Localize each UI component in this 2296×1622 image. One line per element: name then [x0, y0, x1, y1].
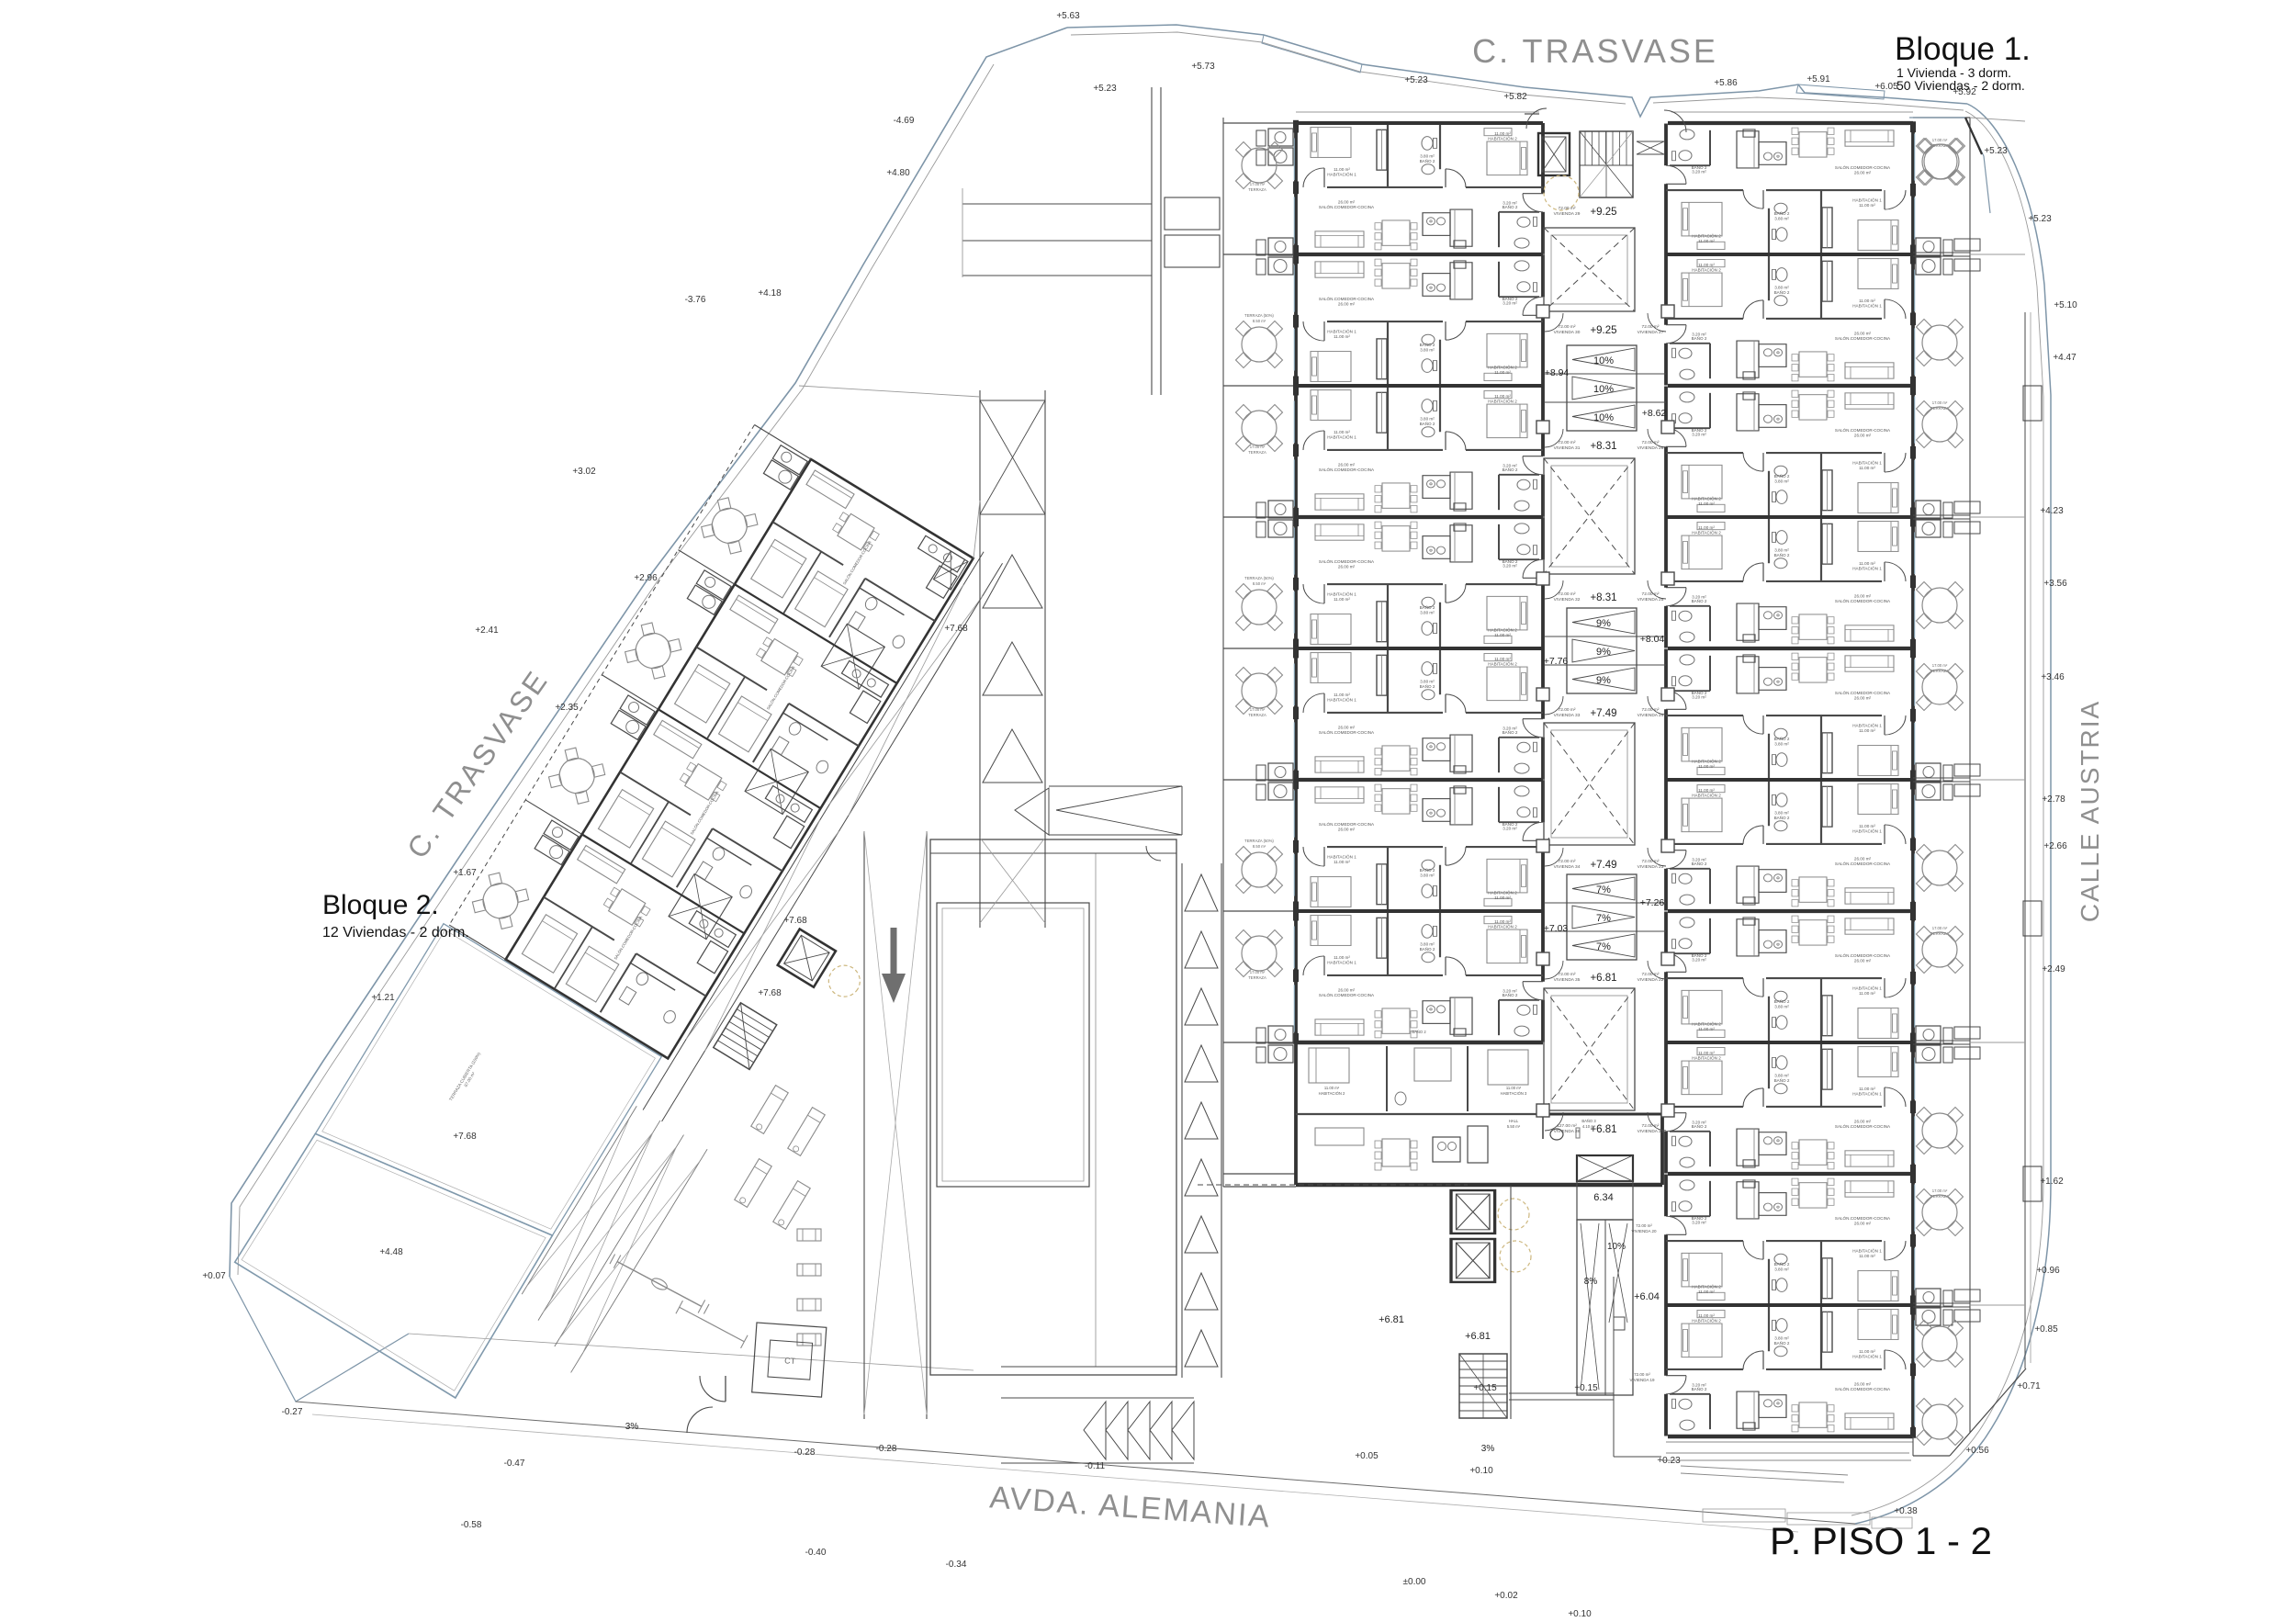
svg-text:SALÓN.COMEDOR-COCINA: SALÓN.COMEDOR-COCINA: [1319, 729, 1375, 735]
svg-text:9%: 9%: [1596, 675, 1611, 686]
svg-text:+8.31: +8.31: [1590, 441, 1616, 452]
svg-text:-0.34: -0.34: [946, 1560, 967, 1570]
svg-text:6.34: 6.34: [1593, 1192, 1613, 1203]
svg-text:3.80 m²: 3.80 m²: [1774, 1335, 1789, 1340]
svg-text:+5.23: +5.23: [2028, 214, 2052, 224]
svg-text:11.00 m²: 11.00 m²: [1334, 167, 1350, 172]
svg-text:72.00 m²: 72.00 m²: [1559, 206, 1576, 211]
svg-text:HABITACIÓN 1: HABITACIÓN 1: [1327, 434, 1356, 440]
svg-text:26.00 m²: 26.00 m²: [1854, 1120, 1872, 1124]
svg-text:+6.04: +6.04: [1634, 1291, 1660, 1302]
svg-text:8%: 8%: [1584, 1277, 1598, 1287]
svg-text:11.00 m²: 11.00 m²: [1494, 370, 1511, 375]
svg-text:5.50 m²: 5.50 m²: [1507, 1124, 1521, 1129]
svg-text:HABITACIÓN 1: HABITACIÓN 1: [1852, 723, 1882, 728]
svg-text:SALÓN.COMEDOR-COCINA: SALÓN.COMEDOR-COCINA: [1319, 467, 1375, 472]
svg-text:3.80 m²: 3.80 m²: [1774, 1005, 1789, 1009]
svg-text:72.00 m²: 72.00 m²: [1559, 972, 1576, 977]
svg-text:BAÑO 3: BAÑO 3: [1581, 1119, 1596, 1123]
svg-text:+4.47: +4.47: [2053, 353, 2077, 363]
svg-text:26.00 m²: 26.00 m²: [1338, 827, 1356, 831]
svg-text:+4.23: +4.23: [2040, 506, 2064, 516]
svg-text:VIVIENDA 35: VIVIENDA 35: [1554, 977, 1581, 983]
svg-text:3%: 3%: [1481, 1444, 1495, 1454]
svg-text:BAÑO 2: BAÑO 2: [1774, 1340, 1790, 1346]
svg-text:11.00 m²: 11.00 m²: [1698, 1051, 1715, 1055]
svg-text:BAÑO 2: BAÑO 2: [1692, 164, 1707, 170]
svg-text:BAÑO 2: BAÑO 2: [1420, 604, 1435, 610]
svg-text:HABITACIÓN 1: HABITACIÓN 1: [1327, 172, 1356, 177]
svg-text:BAÑO 2: BAÑO 2: [1503, 729, 1518, 735]
svg-text:11.00 m²: 11.00 m²: [1334, 334, 1350, 339]
svg-text:HABITACIÓN 1: HABITACIÓN 1: [1852, 1354, 1882, 1359]
svg-text:BAÑO 2: BAÑO 2: [1412, 1030, 1426, 1034]
svg-text:3.80 m²: 3.80 m²: [1774, 742, 1789, 747]
svg-text:26.00 m²: 26.00 m²: [1854, 170, 1872, 175]
svg-text:HABITACIÓN 1: HABITACIÓN 1: [1852, 566, 1882, 571]
svg-text:+5.91: +5.91: [1806, 74, 1830, 84]
svg-text:HABITACIÓN 2: HABITACIÓN 2: [1692, 233, 1721, 239]
svg-text:TERRAZA (50%): TERRAZA (50%): [1244, 313, 1274, 318]
svg-text:-0.11: -0.11: [1085, 1461, 1105, 1471]
svg-text:11.00 m²: 11.00 m²: [1859, 203, 1875, 208]
svg-text:+6.81: +6.81: [1379, 1314, 1404, 1325]
svg-text:+9.25: +9.25: [1590, 207, 1616, 218]
svg-text:+4.80: +4.80: [886, 168, 910, 178]
svg-text:HABITACIÓN 2: HABITACIÓN 2: [1488, 398, 1517, 403]
svg-text:+8.62: +8.62: [1642, 408, 1667, 419]
svg-text:+2.78: +2.78: [2042, 794, 2065, 805]
svg-text:HABITACIÓN 1: HABITACIÓN 1: [1327, 329, 1356, 334]
svg-text:+0.07: +0.07: [202, 1271, 226, 1281]
svg-text:26.00 m²: 26.00 m²: [1338, 301, 1356, 306]
svg-text:VIVIENDA 32: VIVIENDA 32: [1554, 597, 1581, 603]
svg-text:HABITACIÓN 2: HABITACIÓN 2: [1488, 627, 1517, 633]
svg-text:BAÑO 2: BAÑO 2: [1692, 1215, 1707, 1221]
svg-text:12 Viviendas - 2 dorm.: 12 Viviendas - 2 dorm.: [322, 925, 469, 941]
svg-text:11.00 m²: 11.00 m²: [1698, 239, 1715, 243]
svg-text:+5.23: +5.23: [1404, 75, 1428, 85]
svg-text:SALÓN.COMEDOR-COCINA: SALÓN.COMEDOR-COCINA: [1319, 204, 1375, 209]
svg-text:SALÓN.COMEDOR-COCINA: SALÓN.COMEDOR-COCINA: [1835, 335, 1891, 341]
svg-text:8.50 m²: 8.50 m²: [1253, 581, 1266, 586]
svg-text:VIVIENDA 30: VIVIENDA 30: [1554, 330, 1581, 335]
svg-text:HABITACIÓN 2: HABITACIÓN 2: [1488, 365, 1517, 370]
svg-text:11.00 m²: 11.00 m²: [1859, 561, 1875, 566]
svg-text:+1.67: +1.67: [453, 868, 477, 878]
svg-text:11.00 m²: 11.00 m²: [1698, 764, 1715, 769]
svg-text:3.20 m²: 3.20 m²: [1503, 826, 1517, 830]
svg-text:+0.10: +0.10: [1469, 1466, 1493, 1476]
svg-text:11.00 m²: 11.00 m²: [1859, 824, 1875, 828]
svg-text:-3.76: -3.76: [685, 295, 706, 305]
svg-text:11.00 m²: 11.00 m²: [1334, 860, 1350, 864]
svg-text:26.00 m²: 26.00 m²: [1338, 988, 1356, 993]
svg-text:26.00 m²: 26.00 m²: [1854, 433, 1872, 437]
svg-text:BAÑO 2: BAÑO 2: [1692, 861, 1707, 866]
svg-text:HABITACIÓN 3: HABITACIÓN 3: [1501, 1091, 1527, 1096]
svg-text:+5.10: +5.10: [2054, 300, 2077, 310]
svg-text:11.00 m²: 11.00 m²: [1494, 919, 1511, 924]
svg-text:+7.68: +7.68: [758, 988, 782, 998]
svg-text:HABITACIÓN 1: HABITACIÓN 1: [1852, 460, 1882, 466]
svg-text:BAÑO 2: BAÑO 2: [1774, 289, 1790, 295]
svg-text:+0.85: +0.85: [2034, 1324, 2058, 1335]
svg-text:C. TRASVASE: C. TRASVASE: [1472, 32, 1718, 70]
svg-text:11.00 m²: 11.00 m²: [1494, 131, 1511, 136]
svg-text:HABITACIÓN 2: HABITACIÓN 2: [1692, 792, 1721, 797]
svg-text:HABITACIÓN 1: HABITACIÓN 1: [1852, 828, 1882, 834]
svg-text:17.00 m²: 17.00 m²: [1932, 138, 1948, 142]
svg-text:11.00 m²: 11.00 m²: [1859, 1087, 1875, 1091]
svg-text:+0.23: +0.23: [1657, 1456, 1681, 1466]
svg-text:+7.68: +7.68: [783, 916, 807, 926]
svg-text:+0.56: +0.56: [1965, 1446, 1989, 1456]
svg-text:9%: 9%: [1596, 647, 1611, 658]
svg-text:BAÑO 2: BAÑO 2: [1692, 427, 1707, 433]
svg-text:BAÑO 2: BAÑO 2: [1692, 335, 1707, 341]
svg-text:Bloque 1.: Bloque 1.: [1895, 31, 2031, 67]
svg-text:TERRAZA (50%): TERRAZA (50%): [1244, 576, 1274, 580]
svg-text:HABITACIÓN 2: HABITACIÓN 2: [1692, 266, 1721, 272]
svg-text:26.00 m²: 26.00 m²: [1854, 958, 1872, 963]
svg-text:HABITACIÓN 2: HABITACIÓN 2: [1692, 496, 1721, 501]
svg-text:SALÓN.COMEDOR-COCINA: SALÓN.COMEDOR-COCINA: [1835, 164, 1891, 170]
svg-text:3.20 m²: 3.20 m²: [1692, 432, 1706, 436]
svg-text:+1.21: +1.21: [371, 993, 395, 1003]
svg-text:+6.81: +6.81: [1465, 1331, 1491, 1342]
svg-text:26.00 m²: 26.00 m²: [1854, 1221, 1872, 1225]
svg-text:3.20 m²: 3.20 m²: [1692, 169, 1706, 174]
svg-text:SALÓN.COMEDOR-COCINA: SALÓN.COMEDOR-COCINA: [1835, 598, 1891, 603]
svg-text:+0.05: +0.05: [1355, 1451, 1379, 1461]
svg-text:SALÓN.COMEDOR-COCINA: SALÓN.COMEDOR-COCINA: [1835, 861, 1891, 866]
svg-text:BAÑO 2: BAÑO 2: [1503, 204, 1518, 209]
svg-text:HABITACIÓN 2: HABITACIÓN 2: [1692, 1284, 1721, 1290]
svg-text:11.00 m²: 11.00 m²: [1324, 1086, 1340, 1090]
svg-text:3.20 m²: 3.20 m²: [1692, 1220, 1706, 1224]
svg-text:SALÓN.COMEDOR-COCINA: SALÓN.COMEDOR-COCINA: [1835, 427, 1891, 433]
svg-text:SALÓN.COMEDOR-COCINA: SALÓN.COMEDOR-COCINA: [1835, 1215, 1891, 1221]
svg-text:BAÑO 2: BAÑO 2: [1692, 690, 1707, 695]
svg-text:11.00 m²: 11.00 m²: [1859, 1254, 1875, 1258]
svg-text:17.00 m²: 17.00 m²: [1932, 400, 1948, 405]
svg-text:HABITACIÓN 1: HABITACIÓN 1: [1327, 697, 1356, 703]
svg-text:3.80 m²: 3.80 m²: [1774, 810, 1789, 815]
svg-text:+8.94: +8.94: [1545, 367, 1570, 378]
svg-text:-0.58: -0.58: [461, 1520, 482, 1530]
svg-text:9%: 9%: [1596, 618, 1611, 629]
svg-text:11.00 m²: 11.00 m²: [1494, 633, 1511, 637]
svg-text:11.00 m²: 11.00 m²: [1859, 991, 1875, 996]
svg-text:BAÑO 2: BAÑO 2: [1692, 598, 1707, 603]
svg-text:BAÑO 2: BAÑO 2: [1774, 1261, 1790, 1267]
svg-text:HABITACIÓN 2: HABITACIÓN 2: [1692, 529, 1721, 535]
svg-text:10%: 10%: [1593, 355, 1614, 366]
svg-text:7%: 7%: [1596, 884, 1611, 895]
svg-text:BAÑO 2: BAÑO 2: [1420, 946, 1435, 952]
svg-text:+7.49: +7.49: [1590, 860, 1616, 871]
svg-text:26.00 m²: 26.00 m²: [1854, 857, 1872, 862]
svg-text:26.00 m²: 26.00 m²: [1854, 594, 1872, 599]
svg-text:+4.48: +4.48: [379, 1247, 403, 1257]
svg-text:CALLE AUSTRIA: CALLE AUSTRIA: [2076, 700, 2104, 922]
svg-text:-0.47: -0.47: [504, 1459, 525, 1469]
svg-text:BAÑO 2: BAÑO 2: [1420, 421, 1435, 426]
svg-text:HABITACIÓN 1: HABITACIÓN 1: [1852, 986, 1882, 991]
svg-text:8.50 m²: 8.50 m²: [1253, 319, 1266, 323]
svg-text:+7.76: +7.76: [1544, 656, 1569, 667]
svg-text:BAÑO 2: BAÑO 2: [1774, 1077, 1790, 1083]
svg-text:+3.56: +3.56: [2043, 579, 2067, 589]
svg-text:11.00 m²: 11.00 m²: [1506, 1086, 1522, 1090]
svg-text:BAÑO 2: BAÑO 2: [1420, 342, 1435, 347]
svg-text:HABITACIÓN 1: HABITACIÓN 1: [1852, 303, 1882, 309]
svg-text:11.00 m²: 11.00 m²: [1494, 895, 1511, 900]
svg-text:BAÑO 2: BAÑO 2: [1774, 473, 1790, 479]
svg-text:SALÓN.COMEDOR-COCINA: SALÓN.COMEDOR-COCINA: [1319, 821, 1375, 827]
svg-text:+0.96: +0.96: [2036, 1266, 2060, 1276]
svg-text:72.00 m²: 72.00 m²: [1559, 859, 1576, 864]
svg-text:+3.02: +3.02: [572, 467, 596, 477]
svg-text:3%: 3%: [625, 1422, 639, 1432]
svg-text:11.00 m²: 11.00 m²: [1698, 1290, 1715, 1294]
svg-text:+3.46: +3.46: [2041, 672, 2065, 682]
svg-text:BAÑO 2: BAÑO 2: [1774, 736, 1790, 741]
svg-text:+0.10: +0.10: [1568, 1609, 1592, 1619]
svg-text:72.00 m²: 72.00 m²: [1559, 324, 1576, 330]
svg-text:HABITACIÓN 2: HABITACIÓN 2: [1488, 923, 1517, 929]
svg-text:+2.66: +2.66: [2043, 841, 2067, 851]
svg-text:HABITACIÓN 2: HABITACIÓN 2: [1319, 1091, 1345, 1096]
svg-text:+1.62: +1.62: [2040, 1177, 2064, 1187]
svg-text:+0.71: +0.71: [2017, 1381, 2041, 1391]
svg-text:3.80 m²: 3.80 m²: [1420, 611, 1435, 615]
svg-text:BAÑO 2: BAÑO 2: [1503, 821, 1518, 827]
svg-text:BAÑO 2: BAÑO 2: [1420, 158, 1435, 163]
svg-text:-4.69: -4.69: [894, 116, 915, 126]
svg-text:HABITACIÓN 1: HABITACIÓN 1: [1852, 1091, 1882, 1097]
svg-text:+0.15: +0.15: [1574, 1383, 1598, 1393]
svg-text:3.80 m²: 3.80 m²: [1774, 479, 1789, 484]
svg-text:BAÑO 2: BAÑO 2: [1503, 296, 1518, 301]
svg-text:VIVIENDA 33: VIVIENDA 33: [1554, 713, 1581, 718]
svg-text:3.80 m²: 3.80 m²: [1420, 153, 1435, 158]
svg-text:BAÑO 2: BAÑO 2: [1503, 558, 1518, 564]
svg-text:+0.38: +0.38: [1894, 1506, 1918, 1516]
svg-text:3.80 m²: 3.80 m²: [1420, 941, 1435, 946]
svg-text:HABITACIÓN 2: HABITACIÓN 2: [1692, 1054, 1721, 1060]
svg-text:BAÑO 2: BAÑO 2: [1774, 552, 1790, 558]
svg-text:10%: 10%: [1593, 412, 1614, 423]
svg-text:BAÑO 2: BAÑO 2: [1692, 1386, 1707, 1391]
svg-text:26.00 m²: 26.00 m²: [1338, 463, 1356, 467]
svg-text:3.80 m²: 3.80 m²: [1420, 679, 1435, 683]
svg-text:3.20 m²: 3.20 m²: [1692, 694, 1706, 699]
svg-text:BAÑO 2: BAÑO 2: [1774, 998, 1790, 1004]
svg-text:26.00 m²: 26.00 m²: [1338, 726, 1356, 730]
svg-text:SALÓN.COMEDOR-COCINA: SALÓN.COMEDOR-COCINA: [1835, 690, 1891, 695]
svg-text:72.00 m²: 72.00 m²: [1559, 707, 1576, 713]
svg-text:CT: CT: [784, 1356, 796, 1366]
svg-text:+5.63: +5.63: [1056, 11, 1080, 21]
svg-text:11.00 m²: 11.00 m²: [1494, 394, 1511, 399]
svg-text:+7.03: +7.03: [1544, 923, 1569, 934]
svg-text:TERRAZA (50%): TERRAZA (50%): [1244, 839, 1274, 843]
svg-text:11.00 m²: 11.00 m²: [1859, 1349, 1875, 1354]
svg-text:+7.68: +7.68: [453, 1132, 477, 1142]
svg-text:BAÑO 2: BAÑO 2: [1503, 992, 1518, 997]
svg-text:-0.27: -0.27: [282, 1407, 303, 1417]
svg-text:Bloque 2.: Bloque 2.: [322, 890, 439, 920]
svg-text:11.00 m²: 11.00 m²: [1698, 525, 1715, 530]
svg-text:SALÓN.COMEDOR-COCINA: SALÓN.COMEDOR-COCINA: [1319, 558, 1375, 564]
svg-text:11.00 m²: 11.00 m²: [1334, 955, 1350, 960]
svg-text:8.50 m²: 8.50 m²: [1253, 844, 1266, 849]
svg-text:+5.73: +5.73: [1191, 62, 1215, 72]
svg-text:SALÓN.COMEDOR-COCINA: SALÓN.COMEDOR-COCINA: [1319, 296, 1375, 301]
svg-text:11.00 m²: 11.00 m²: [1859, 728, 1875, 733]
svg-text:11.00 m²: 11.00 m²: [1698, 501, 1715, 506]
svg-text:7%: 7%: [1596, 941, 1611, 952]
svg-text:VIVIENDA 29: VIVIENDA 29: [1554, 211, 1581, 217]
svg-text:10%: 10%: [1593, 384, 1614, 395]
svg-text:+5.86: +5.86: [1714, 78, 1738, 88]
svg-text:+6.81: +6.81: [1590, 1124, 1616, 1135]
svg-text:HALL: HALL: [1509, 1119, 1519, 1123]
svg-text:17.00 m²: 17.00 m²: [1932, 926, 1948, 930]
svg-text:26.00 m²: 26.00 m²: [1854, 695, 1872, 700]
svg-text:3.20 m²: 3.20 m²: [1503, 563, 1517, 568]
svg-text:BAÑO 2: BAÑO 2: [1774, 815, 1790, 820]
svg-text:11.00 m²: 11.00 m²: [1698, 1313, 1715, 1318]
svg-text:+0.02: +0.02: [1494, 1591, 1518, 1601]
svg-text:17.00 m²: 17.00 m²: [1932, 1188, 1948, 1193]
svg-text:3.80 m²: 3.80 m²: [1774, 1073, 1789, 1077]
svg-text:26.00 m²: 26.00 m²: [1854, 332, 1872, 336]
svg-text:+6.05: +6.05: [1874, 82, 1898, 92]
svg-text:TERRAZA: TERRAZA: [1248, 713, 1266, 717]
svg-text:11.00 m²: 11.00 m²: [1859, 298, 1875, 303]
svg-text:HABITACIÓN 1: HABITACIÓN 1: [1327, 591, 1356, 597]
svg-text:11.00 m²: 11.00 m²: [1698, 263, 1715, 267]
svg-text:11.00 m²: 11.00 m²: [1334, 597, 1350, 602]
svg-text:HABITACIÓN 2: HABITACIÓN 2: [1692, 759, 1721, 764]
svg-text:+7.26: +7.26: [1640, 897, 1665, 908]
svg-text:10%: 10%: [1607, 1242, 1626, 1252]
svg-text:BAÑO 2: BAÑO 2: [1692, 1123, 1707, 1129]
svg-text:BAÑO 2: BAÑO 2: [1420, 683, 1435, 689]
svg-text:+4.18: +4.18: [758, 288, 782, 298]
svg-text:+0.15: +0.15: [1473, 1383, 1497, 1393]
svg-text:11.00 m²: 11.00 m²: [1334, 430, 1350, 434]
svg-text:±0.00: ±0.00: [1403, 1577, 1426, 1587]
svg-text:3.80 m²: 3.80 m²: [1774, 217, 1789, 221]
svg-text:72.00 m²: 72.00 m²: [1559, 591, 1576, 597]
svg-text:3.80 m²: 3.80 m²: [1420, 873, 1435, 878]
svg-text:BAÑO 2: BAÑO 2: [1503, 467, 1518, 472]
svg-text:+5.82: +5.82: [1503, 92, 1527, 102]
svg-text:SALÓN.COMEDOR-COCINA: SALÓN.COMEDOR-COCINA: [1319, 992, 1375, 997]
svg-text:11.00 m²: 11.00 m²: [1698, 1027, 1715, 1031]
svg-text:HABITACIÓN 2: HABITACIÓN 2: [1692, 1021, 1721, 1027]
svg-text:VIVIENDA 34: VIVIENDA 34: [1554, 864, 1581, 870]
svg-text:HABITACIÓN 1: HABITACIÓN 1: [1327, 960, 1356, 965]
svg-text:+7.68: +7.68: [944, 624, 968, 634]
svg-text:+8.31: +8.31: [1590, 592, 1616, 603]
svg-text:+2.35: +2.35: [555, 703, 579, 713]
svg-text:26.00 m²: 26.00 m²: [1854, 1382, 1872, 1387]
svg-text:11.00 m²: 11.00 m²: [1859, 466, 1875, 470]
svg-text:17.00 m²: 17.00 m²: [1932, 663, 1948, 668]
svg-text:+6.81: +6.81: [1590, 973, 1616, 984]
svg-text:+5.23: +5.23: [1984, 146, 2008, 156]
svg-text:3.80 m²: 3.80 m²: [1774, 1267, 1789, 1272]
svg-text:+8.04: +8.04: [1640, 634, 1665, 645]
svg-text:7%: 7%: [1596, 913, 1611, 924]
svg-text:72.00 m²: 72.00 m²: [1636, 1223, 1652, 1228]
svg-text:TERRAZA: TERRAZA: [1248, 187, 1266, 192]
svg-text:72.00 m²: 72.00 m²: [1634, 1372, 1650, 1377]
svg-text:HABITACIÓN 2: HABITACIÓN 2: [1488, 890, 1517, 895]
svg-text:3.20 m²: 3.20 m²: [1692, 957, 1706, 962]
svg-text:26.00 m²: 26.00 m²: [1338, 564, 1356, 569]
svg-text:+2.49: +2.49: [2042, 964, 2065, 974]
svg-text:11.00 m²: 11.00 m²: [1334, 693, 1350, 697]
svg-text:HABITACIÓN 1: HABITACIÓN 1: [1852, 1248, 1882, 1254]
svg-text:SALÓN.COMEDOR-COCINA: SALÓN.COMEDOR-COCINA: [1835, 952, 1891, 958]
svg-text:BAÑO 2: BAÑO 2: [1774, 210, 1790, 216]
svg-text:HABITACIÓN 2: HABITACIÓN 2: [1488, 135, 1517, 141]
svg-text:-0.28: -0.28: [876, 1444, 897, 1454]
svg-text:HABITACIÓN 1: HABITACIÓN 1: [1327, 854, 1356, 860]
svg-text:26.00 m²: 26.00 m²: [1338, 200, 1356, 205]
svg-text:HABITACIÓN 2: HABITACIÓN 2: [1692, 1317, 1721, 1323]
svg-text:VIVIENDA 20: VIVIENDA 20: [1631, 1229, 1657, 1233]
svg-text:3.80 m²: 3.80 m²: [1420, 348, 1435, 353]
svg-text:3.80 m²: 3.80 m²: [1774, 285, 1789, 289]
svg-text:3.80 m²: 3.80 m²: [1774, 547, 1789, 552]
svg-text:VIVIENDA 36: VIVIENDA 36: [1554, 1129, 1581, 1134]
svg-text:SALÓN.COMEDOR-COCINA: SALÓN.COMEDOR-COCINA: [1835, 1123, 1891, 1129]
svg-text:BAÑO 2: BAÑO 2: [1692, 952, 1707, 958]
svg-text:3.80 m²: 3.80 m²: [1420, 416, 1435, 421]
svg-text:P. PISO 1 - 2: P. PISO 1 - 2: [1770, 1519, 1992, 1562]
svg-text:BAÑO 2: BAÑO 2: [1420, 867, 1435, 873]
svg-text:TERRAZA: TERRAZA: [1248, 450, 1266, 455]
svg-text:HABITACIÓN 2: HABITACIÓN 2: [1488, 660, 1517, 666]
svg-text:+9.25: +9.25: [1590, 325, 1616, 336]
svg-text:-0.28: -0.28: [794, 1447, 816, 1458]
svg-text:11.00 m²: 11.00 m²: [1494, 657, 1511, 661]
svg-text:-0.40: -0.40: [805, 1548, 827, 1558]
svg-text:+5.23: +5.23: [1093, 84, 1117, 94]
svg-text:+5.92: +5.92: [1953, 87, 1976, 97]
svg-text:HABITACIÓN 1: HABITACIÓN 1: [1852, 197, 1882, 203]
svg-text:11.00 m²: 11.00 m²: [1698, 788, 1715, 793]
svg-text:TERRAZA: TERRAZA: [1248, 975, 1266, 980]
svg-text:VIVIENDA 31: VIVIENDA 31: [1554, 445, 1581, 451]
svg-text:+2.41: +2.41: [475, 625, 499, 636]
svg-text:127.00 m²: 127.00 m²: [1557, 1123, 1577, 1129]
svg-text:3.20 m²: 3.20 m²: [1503, 300, 1517, 305]
svg-text:72.00 m²: 72.00 m²: [1559, 440, 1576, 445]
svg-text:SALÓN.COMEDOR-COCINA: SALÓN.COMEDOR-COCINA: [1835, 1386, 1891, 1391]
svg-text:+2.96: +2.96: [634, 573, 658, 583]
svg-text:+7.49: +7.49: [1590, 708, 1616, 719]
